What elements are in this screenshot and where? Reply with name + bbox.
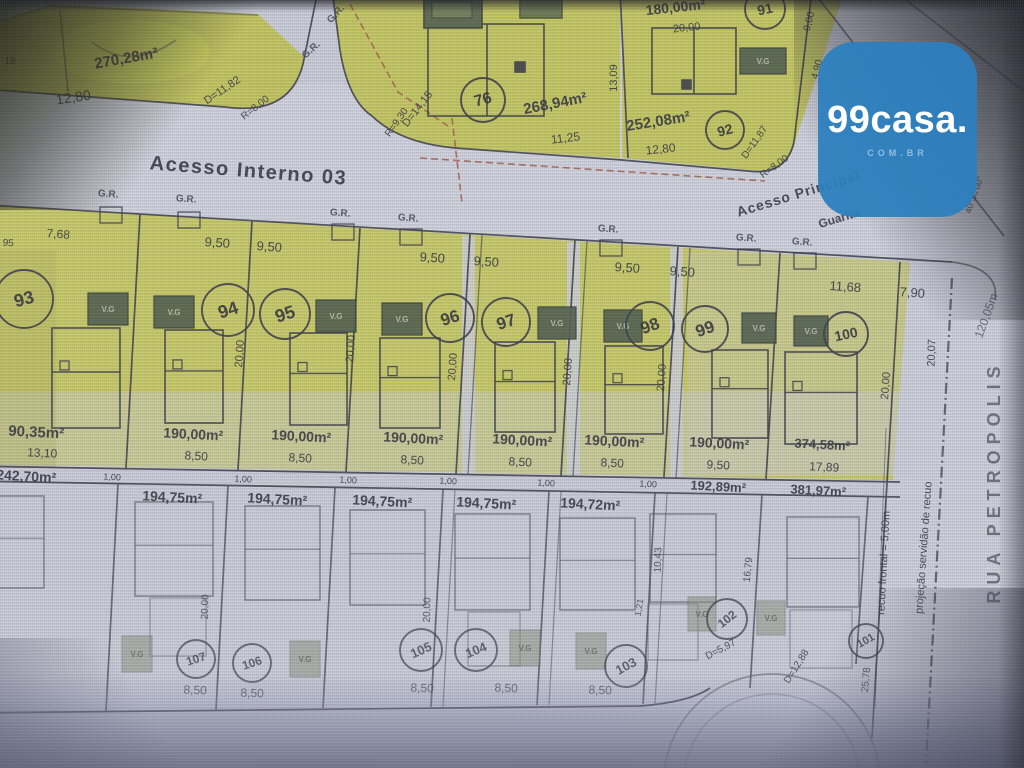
dim-label: 20,00 — [422, 597, 434, 623]
dim-label: 95 — [2, 238, 14, 250]
area-label: 190,00m² — [689, 433, 750, 452]
vg-label: V.G — [764, 614, 777, 623]
area-label: 190,00m² — [383, 428, 444, 447]
vg-label: V.G — [298, 655, 311, 664]
vg-label: V.G — [101, 305, 114, 314]
dim-label: 18 — [4, 56, 16, 67]
vg-label: V.G — [395, 315, 408, 324]
area-label: 374,58m² — [794, 436, 851, 454]
area-label: 194,75m² — [456, 493, 517, 512]
dim-label: 8,50 — [240, 686, 264, 701]
gr-label: G.R. — [598, 223, 619, 235]
dim-label: 9,50 — [473, 253, 499, 270]
dim-label: 8,50 — [288, 450, 312, 465]
logo-subtext: COM.BR — [867, 148, 928, 158]
dim-label: 9,50 — [614, 259, 640, 276]
dim-label: 20,00 — [233, 340, 247, 368]
dim-label: 25,78 — [860, 666, 873, 692]
dim-label: 9,50 — [706, 457, 730, 472]
dim-label: 20,00 — [344, 335, 358, 363]
dim-label: 8,50 — [410, 681, 434, 696]
dim-label: 9,50 — [204, 234, 230, 251]
area-label: 194,75m² — [142, 487, 203, 506]
street-label: RUA PETROPOLIS — [984, 360, 1004, 603]
dim-label: 8,50 — [600, 455, 624, 470]
vg-label: V.G — [518, 644, 531, 653]
vg-label: V.G — [756, 57, 769, 66]
99casa-logo-badge: 99casa. COM.BR — [818, 42, 977, 217]
area-label: 381,97m² — [790, 482, 847, 500]
dim-label: 20,07 — [926, 339, 939, 367]
area-label: 190,00m² — [492, 430, 553, 449]
dim-label: 11,68 — [829, 278, 862, 295]
dim-label: 1,00 — [234, 474, 252, 485]
gr-label: G.R. — [792, 236, 813, 248]
area-label: 190,00m² — [271, 426, 332, 445]
dim-label: 8,50 — [400, 452, 424, 467]
gr-label: G.R. — [736, 232, 757, 244]
area-label: 190,00m² — [163, 424, 224, 443]
dim-label: 8,50 — [588, 683, 612, 698]
dim-label: 13,10 — [27, 445, 58, 461]
vg-label: V.G — [550, 319, 563, 328]
dim-label: 9,50 — [419, 249, 445, 266]
dim-label: 20,00 — [655, 364, 669, 392]
dim-label: 1,00 — [639, 479, 657, 490]
vg-label: V.G — [584, 647, 597, 656]
dim-label: 1,00 — [103, 472, 121, 483]
vg-label: V.G — [804, 327, 817, 336]
vg-label: V.G — [752, 324, 765, 333]
area-label: 242,70m² — [0, 466, 57, 485]
gr-label: G.R. — [98, 188, 119, 200]
dim-label: 8,50 — [508, 454, 532, 469]
dim-label: 8,50 — [184, 448, 208, 463]
vg-label: V.G — [616, 322, 629, 331]
dim-label: 20,00 — [446, 353, 460, 381]
site-plan-photo: V.GV.GV.GV.GV.GV.GV.GV.GV.GV.GV.GV.GV.GV… — [0, 0, 1024, 768]
dim-label: 20,00 — [561, 358, 575, 386]
logo-text: 99casa. — [827, 101, 968, 139]
vg-label: V.G — [130, 650, 143, 659]
dim-label: 8,50 — [183, 683, 207, 698]
dim-label: 9,50 — [256, 238, 282, 255]
area-label: 194,72m² — [560, 494, 621, 513]
dim-label: 1,00 — [339, 475, 357, 486]
dim-label: 10,43 — [653, 547, 665, 573]
dim-label: 9,50 — [669, 263, 695, 280]
gr-label: G.R. — [330, 207, 351, 219]
vg-label: V.G — [167, 308, 180, 317]
dim-label: 8,50 — [494, 681, 518, 696]
area-label: 194,75m² — [247, 489, 308, 508]
gr-label: G.R. — [398, 212, 419, 224]
area-label: 90,35m² — [8, 423, 65, 443]
gr-label: G.R. — [176, 193, 197, 205]
dim-label: 7,90 — [899, 284, 925, 301]
dim-label: 17,89 — [809, 459, 840, 475]
vg-label: V.G — [329, 312, 342, 321]
area-label: 192,89m² — [690, 478, 747, 496]
area-label: 194,75m² — [352, 491, 413, 510]
dim-label: 1,00 — [439, 476, 457, 487]
dim-label: 20,00 — [200, 594, 212, 620]
area-label: 190,00m² — [584, 431, 645, 450]
dim-label: 1,00 — [537, 478, 555, 489]
dim-label: 7,68 — [46, 226, 71, 242]
dim-label: 20,00 — [879, 372, 893, 400]
dim-label: 13,09 — [608, 64, 620, 92]
